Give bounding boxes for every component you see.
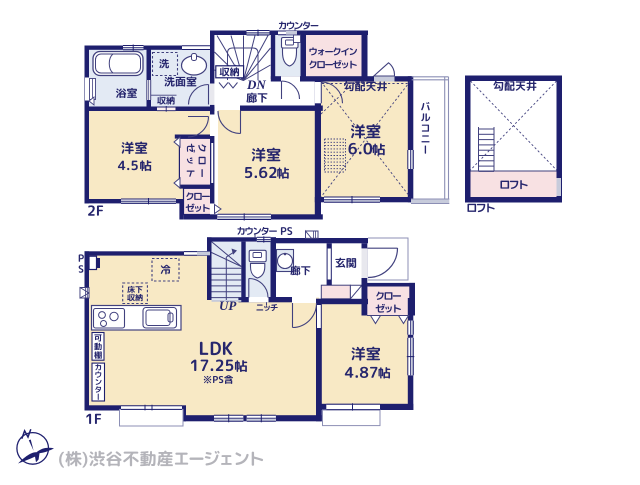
svg-text:DN: DN — [246, 77, 266, 92]
svg-text:UP: UP — [219, 298, 237, 313]
